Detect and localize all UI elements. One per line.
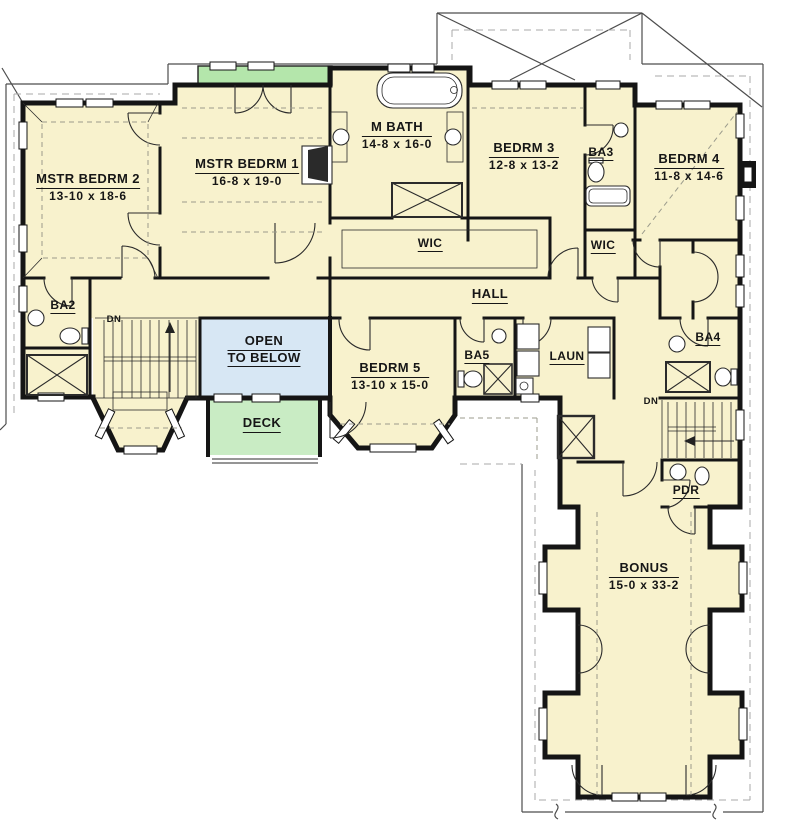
toilet-icon (588, 162, 604, 182)
deck-steps (212, 459, 318, 463)
dryer-icon (517, 351, 539, 376)
stair-label-dn-right: DN (644, 397, 659, 408)
room-name: BA2 (50, 299, 75, 314)
room-dims: 12-8 x 13-2 (489, 159, 559, 172)
room-label-deck: DECK (243, 416, 281, 433)
room-name: DECK (243, 416, 281, 433)
room-name: BA5 (464, 349, 489, 364)
room-label-bedrm-5: BEDRM 5 13-10 x 15-0 (351, 361, 429, 392)
sink-icon (333, 129, 349, 145)
room-label-bedrm-3: BEDRM 3 12-8 x 13-2 (489, 141, 559, 172)
room-name-line1: OPEN (227, 334, 300, 351)
tub-icon (377, 73, 462, 108)
room-name-line2: TO BELOW (227, 351, 300, 368)
room-name: BEDRM 3 (489, 141, 559, 158)
room-label-mstr-bedrm-2: MSTR BEDRM 2 13-10 x 18-6 (36, 172, 140, 203)
room-label-ba4: BA4 (695, 331, 720, 346)
sink-icon (445, 129, 461, 145)
room-dims: 11-8 x 14-6 (654, 170, 724, 183)
sink-icon (492, 329, 506, 343)
sink-icon (670, 464, 686, 480)
sink-icon (28, 310, 44, 326)
toilet-icon (464, 371, 482, 387)
room-label-hall: HALL (472, 287, 508, 304)
shower-icon (308, 146, 328, 182)
washer-icon (517, 324, 539, 349)
room-name: HALL (472, 287, 508, 304)
room-label-m-bath: M BATH 14-8 x 16-0 (362, 120, 432, 151)
room-name: LAUN (550, 350, 585, 365)
room-name: PDR (673, 484, 700, 499)
room-dims: 13-10 x 18-6 (36, 190, 140, 203)
room-name: WIC (418, 237, 443, 252)
room-label-wic-bedrm3: WIC (591, 239, 616, 254)
room-label-ba2: BA2 (50, 299, 75, 314)
room-dims: 13-10 x 15-0 (351, 379, 429, 392)
room-name: BA4 (695, 331, 720, 346)
room-dims: 14-8 x 16-0 (362, 138, 432, 151)
room-label-laun: LAUN (550, 350, 585, 365)
room-name: M BATH (362, 120, 432, 137)
room-label-ba5: BA5 (464, 349, 489, 364)
room-name: BONUS (609, 561, 679, 578)
toilet-icon (60, 328, 80, 344)
room-label-ba3: BA3 (588, 146, 613, 161)
room-label-pdr: PDR (673, 484, 700, 499)
sink-icon (669, 336, 685, 352)
toilet-icon (715, 368, 731, 386)
room-name: MSTR BEDRM 2 (36, 172, 140, 189)
floor-plan: MSTR BEDRM 2 13-10 x 18-6 MSTR BEDRM 1 1… (0, 0, 800, 820)
room-label-open-to-below: OPEN TO BELOW (227, 334, 300, 367)
room-label-wic-master: WIC (418, 237, 443, 252)
room-name: BEDRM 4 (654, 152, 724, 169)
sink-icon (614, 123, 628, 137)
stair-label-dn-left: DN (107, 315, 122, 326)
room-name: BA3 (588, 146, 613, 161)
room-label-mstr-bedrm-1: MSTR BEDRM 1 16-8 x 19-0 (195, 157, 299, 188)
room-dims: 15-0 x 33-2 (609, 579, 679, 592)
room-name: MSTR BEDRM 1 (195, 157, 299, 174)
room-name: BEDRM 5 (351, 361, 429, 378)
room-name: WIC (591, 239, 616, 254)
room-label-bonus: BONUS 15-0 x 33-2 (609, 561, 679, 592)
room-dims: 16-8 x 19-0 (195, 175, 299, 188)
room-label-bedrm-4: BEDRM 4 11-8 x 14-6 (654, 152, 724, 183)
